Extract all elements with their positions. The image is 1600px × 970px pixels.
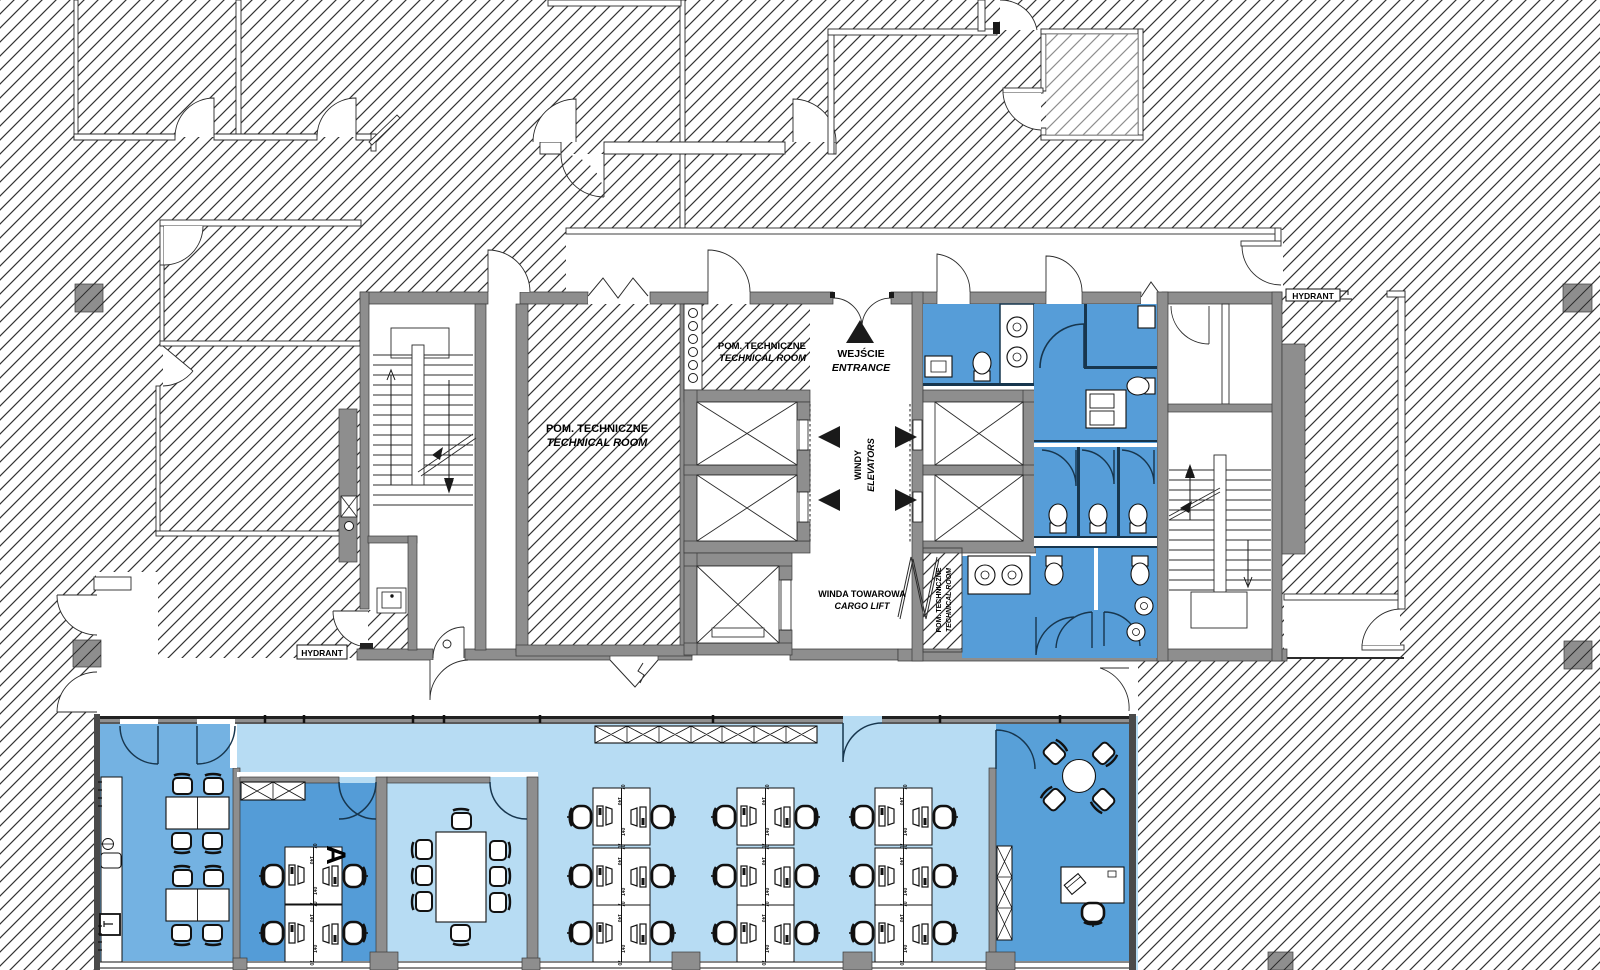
svg-text:TECHNICAL ROOM: TECHNICAL ROOM [547, 437, 648, 449]
svg-text:POM. TECHNICZNE: POM. TECHNICZNE [718, 341, 806, 352]
svg-text:CARGO LIFT: CARGO LIFT [835, 601, 891, 611]
svg-text:WEJŚCIE: WEJŚCIE [837, 347, 884, 360]
svg-text:HYDRANT: HYDRANT [301, 648, 343, 658]
svg-text:WINDY: WINDY [853, 450, 863, 480]
svg-text:POM. TECHNICZNE: POM. TECHNICZNE [936, 567, 943, 632]
svg-text:ENTRANCE: ENTRANCE [832, 362, 891, 374]
svg-text:WINDA TOWAROWA: WINDA TOWAROWA [818, 589, 906, 599]
svg-text:ELEVATORS: ELEVATORS [866, 438, 876, 492]
svg-text:TECHNICAL ROOM: TECHNICAL ROOM [719, 353, 807, 364]
svg-text:POM. TECHNICZNE: POM. TECHNICZNE [546, 423, 648, 435]
svg-text:A: A [321, 845, 351, 865]
svg-text:TECHNICAL ROOM: TECHNICAL ROOM [946, 568, 953, 632]
svg-text:HYDRANT: HYDRANT [1292, 291, 1334, 301]
